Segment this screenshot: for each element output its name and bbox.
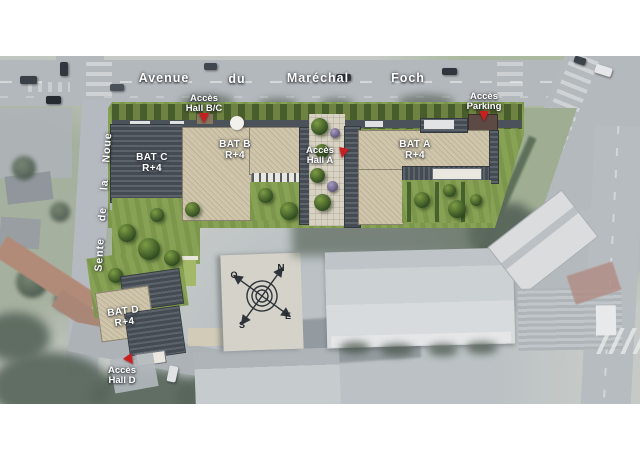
bat-c-label: BAT C R+4: [136, 153, 168, 174]
site-plan-page: { "streets": { "avenue_words": ["Avenue"…: [0, 0, 640, 470]
roof-deck: [424, 120, 454, 129]
tree: [314, 194, 331, 211]
bat-d-label: BAT D R+4: [107, 305, 141, 330]
tree: [448, 200, 466, 218]
street-name-avenue: Maréchal: [287, 72, 349, 85]
hedge: [407, 182, 411, 222]
compass-west-label: O: [230, 270, 237, 280]
tree: [280, 202, 298, 220]
car: [110, 84, 124, 91]
car: [442, 68, 457, 75]
tree: [118, 224, 136, 242]
access-parking-label: Accès Parking: [467, 92, 502, 112]
bush: [428, 344, 458, 356]
tree: [164, 250, 180, 266]
access-hall-bc-label: Accès Hall B/C: [186, 94, 222, 114]
car: [46, 96, 61, 104]
tree: [150, 208, 164, 222]
hedge: [435, 182, 439, 222]
bat-b-pergola: [252, 173, 302, 182]
crosswalk: [596, 328, 640, 354]
crosswalk: [86, 62, 112, 102]
shrub: [327, 181, 338, 192]
tree: [470, 194, 482, 206]
tree: [185, 202, 200, 217]
bush: [466, 342, 498, 354]
building-bat-a-roof-south: [358, 169, 404, 225]
street-name-avenue: Foch: [391, 72, 425, 85]
compass-south-label: S: [239, 320, 245, 330]
bat-b-label: BAT B R+4: [219, 140, 251, 161]
car: [60, 62, 68, 76]
white-canopy: [230, 116, 244, 130]
tree: [414, 192, 430, 208]
tree-faded: [50, 202, 70, 222]
access-hall-a-label: Accès Hall A: [306, 146, 334, 166]
street-name-avenue: du: [228, 73, 245, 86]
tree: [258, 188, 273, 203]
bat-a-east-wing: [489, 130, 499, 184]
street-name-avenue: Avenue: [139, 72, 190, 85]
car: [204, 63, 217, 70]
access-parking-marker: [479, 111, 489, 121]
bat-a-label: BAT A R+4: [399, 140, 430, 161]
tree: [443, 184, 456, 197]
bat-a-balcony: [432, 168, 482, 180]
tree: [310, 168, 325, 183]
access-hall-d-label: Accès Hall D: [108, 366, 136, 386]
shrub: [330, 128, 340, 138]
tree: [311, 118, 328, 135]
tree: [138, 238, 160, 260]
building-existing: [325, 248, 515, 349]
car: [20, 76, 37, 84]
tree-faded: [12, 156, 36, 180]
compass-east-label: E: [285, 311, 291, 321]
compass-north-label: N: [277, 263, 284, 274]
roof-deck: [365, 121, 383, 127]
bush: [340, 342, 370, 354]
building-faded: [0, 108, 72, 178]
building-bat-b-roof-east: [249, 127, 306, 175]
access-hall-a-marker: [337, 147, 349, 159]
bush: [380, 344, 414, 356]
house-faded: [194, 347, 341, 404]
compass-rose: N E S O: [223, 257, 301, 335]
access-hall-bc-marker: [199, 113, 209, 123]
